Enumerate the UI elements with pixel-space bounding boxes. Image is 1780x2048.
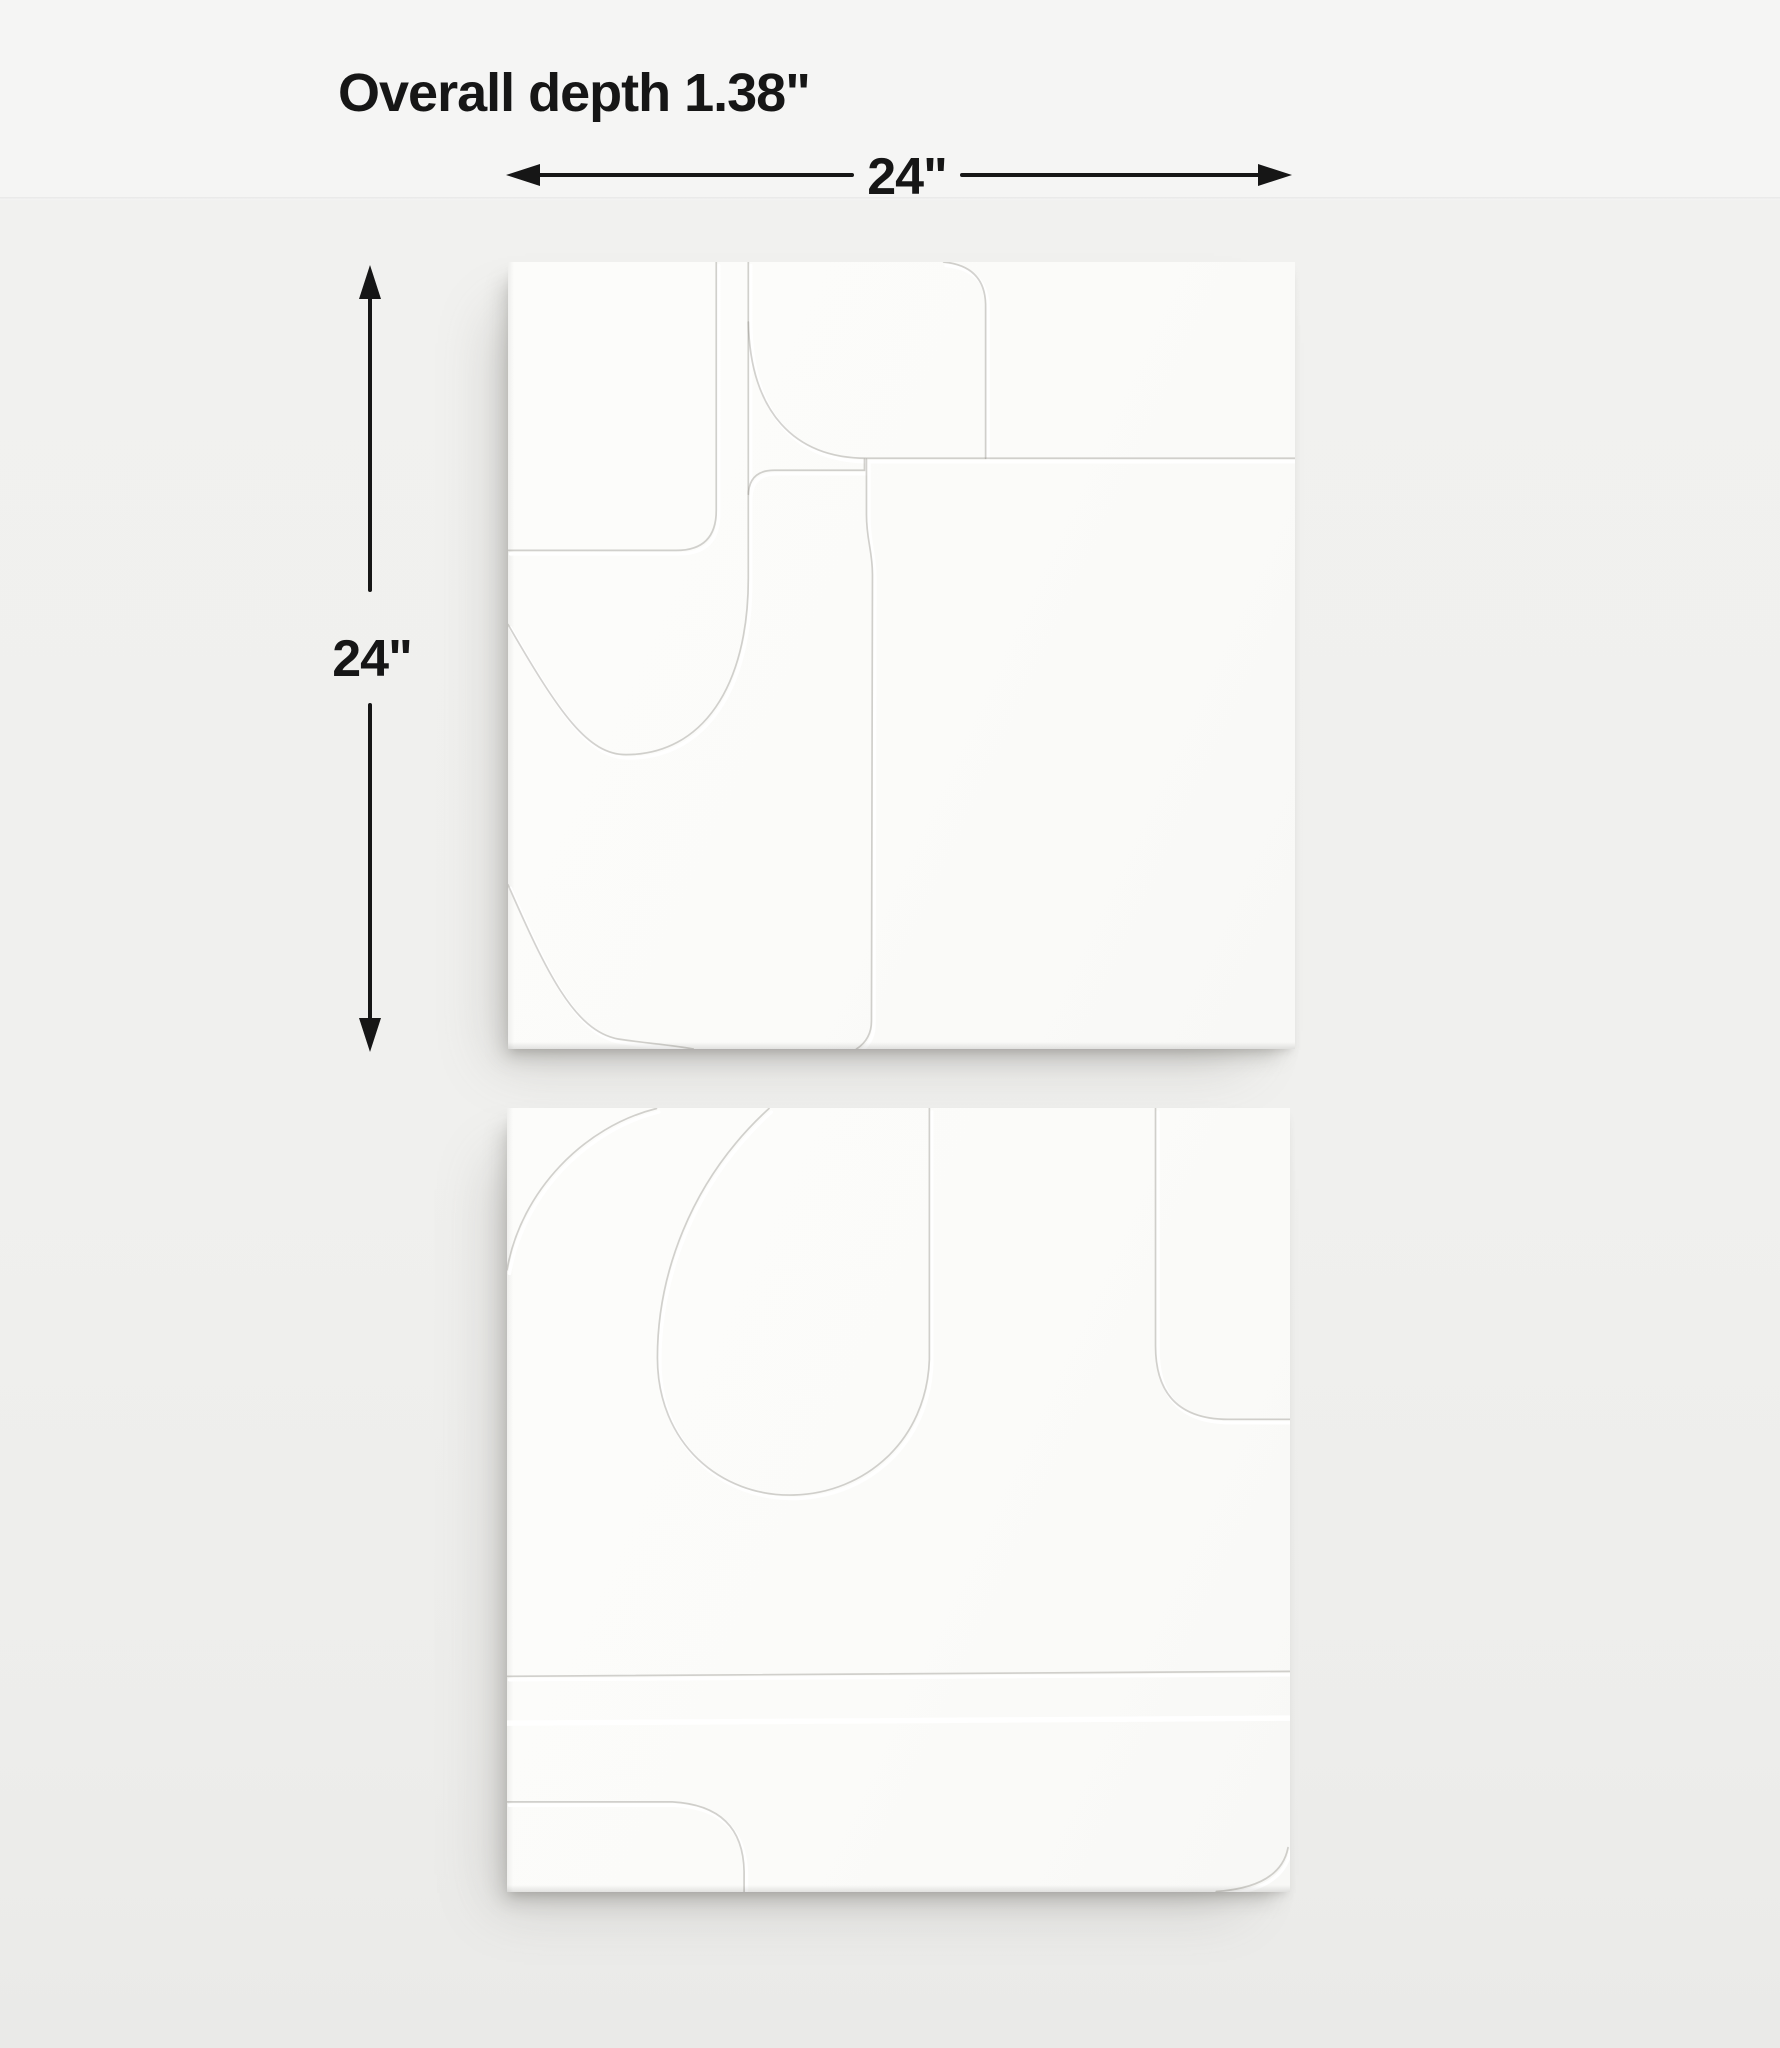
panel-top-relief-pattern (508, 262, 1295, 1049)
panel-bottom-relief-pattern (507, 1108, 1290, 1892)
wall-art-panel-top (508, 262, 1295, 1049)
arrowhead-down-icon (359, 1018, 381, 1052)
arrowhead-left-icon (506, 164, 540, 186)
height-dimension-line-top (368, 296, 372, 592)
width-dimension-label: 24" (832, 147, 982, 207)
product-dimension-diagram: Overall depth 1.38" 24" 24" (0, 0, 1780, 2048)
height-dimension-line-bottom (368, 703, 372, 1020)
height-dimension-label: 24" (297, 629, 447, 689)
arrowhead-right-icon (1258, 164, 1292, 186)
depth-dimension-label: Overall depth 1.38" (338, 62, 810, 124)
width-dimension-line-right (960, 173, 1260, 177)
wall-art-panel-bottom (507, 1108, 1290, 1892)
width-dimension-line-left (538, 173, 854, 177)
arrowhead-up-icon (359, 265, 381, 299)
